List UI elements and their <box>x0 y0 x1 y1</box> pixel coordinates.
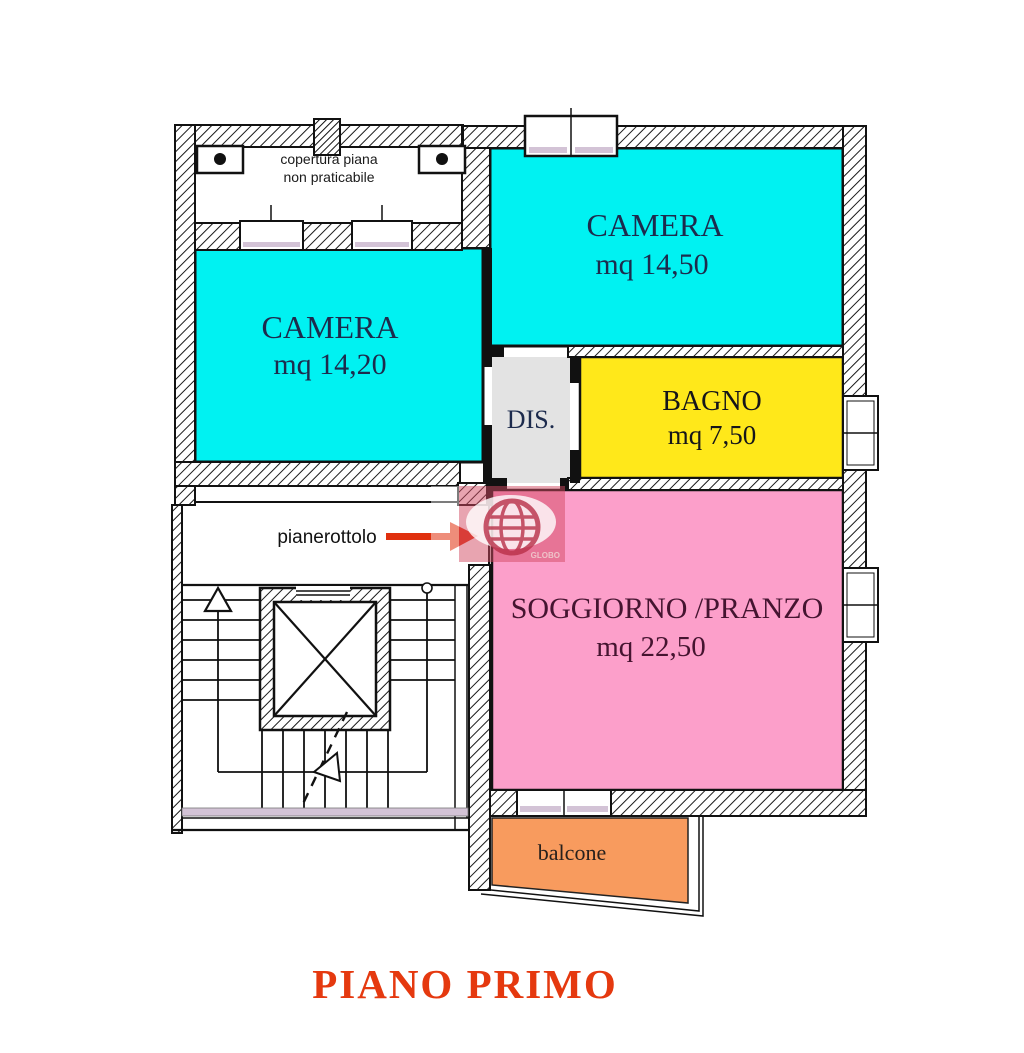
wall-right-lower <box>843 642 866 790</box>
wall-soggiorno-bottom-left <box>490 790 517 816</box>
room-bagno <box>580 357 843 478</box>
watermark-logo: GLOBO <box>431 486 565 562</box>
camera-right-area: mq 14,50 <box>595 248 708 281</box>
balcony-door <box>517 790 611 816</box>
wall-right-middle <box>843 470 866 568</box>
watermark-text: GLOBO <box>531 551 560 560</box>
bagno-area: mq 7,50 <box>668 420 757 450</box>
wall-left-lower <box>172 505 182 833</box>
stair-treads-right <box>390 600 455 680</box>
wall-top-right <box>463 126 845 148</box>
partition-dis-bagno <box>570 450 580 483</box>
plan-title: PIANO PRIMO <box>312 961 618 1007</box>
floor-plan-page: GLOBO copertura piana non praticabile CA… <box>0 0 1024 1053</box>
partition-camera-dis <box>483 425 492 483</box>
partition-camera2-dis <box>490 346 504 357</box>
balcone-name: balcone <box>538 840 606 865</box>
stair-sill <box>182 808 468 816</box>
room-camera-right <box>490 148 843 346</box>
window-camera-left-2 <box>352 205 412 250</box>
wall-soggiorno-bottom-right <box>611 790 866 816</box>
bagno-name: BAGNO <box>662 386 762 417</box>
floor-plan-svg: GLOBO copertura piana non praticabile CA… <box>0 0 1024 1053</box>
partition-dis-bagno <box>570 357 580 383</box>
roof-label-line1: copertura piana <box>280 151 378 167</box>
camera-right-name: CAMERA <box>587 207 724 243</box>
roof-label-line2: non praticabile <box>283 169 374 185</box>
wall-roof-band <box>195 223 240 250</box>
dis-name: DIS. <box>507 405 555 434</box>
window-camera-left-1 <box>240 205 303 250</box>
wall-left-upper <box>175 125 195 505</box>
stair-walk-arrow-icon <box>314 753 340 781</box>
elevator-door <box>296 586 350 600</box>
stairwell <box>172 583 470 830</box>
soggiorno-name: SOGGIORNO /PRANZO <box>511 592 824 625</box>
roof-chimney <box>314 119 340 155</box>
elevator <box>260 586 390 730</box>
wall-roof-band <box>303 223 352 250</box>
window-soggiorno <box>843 568 878 642</box>
wall-bagno-top <box>568 346 843 357</box>
wall-bagno-bottom <box>568 478 843 490</box>
wall-right-upper <box>843 126 866 396</box>
drain-dot-icon <box>214 153 226 165</box>
pianerottolo-label: pianerottolo <box>277 527 376 548</box>
window-camera-right-top <box>525 108 617 156</box>
wall-stair-right <box>469 565 490 890</box>
wall-camera-left-bottom <box>175 462 460 486</box>
window-bagno <box>843 396 878 470</box>
camera-left-name: CAMERA <box>262 309 399 345</box>
camera-left-area: mq 14,20 <box>273 348 386 381</box>
drain-dot-icon <box>436 153 448 165</box>
stair-treads-left <box>182 600 260 700</box>
wall-roof-band <box>412 223 462 250</box>
soggiorno-area: mq 22,50 <box>596 631 706 663</box>
